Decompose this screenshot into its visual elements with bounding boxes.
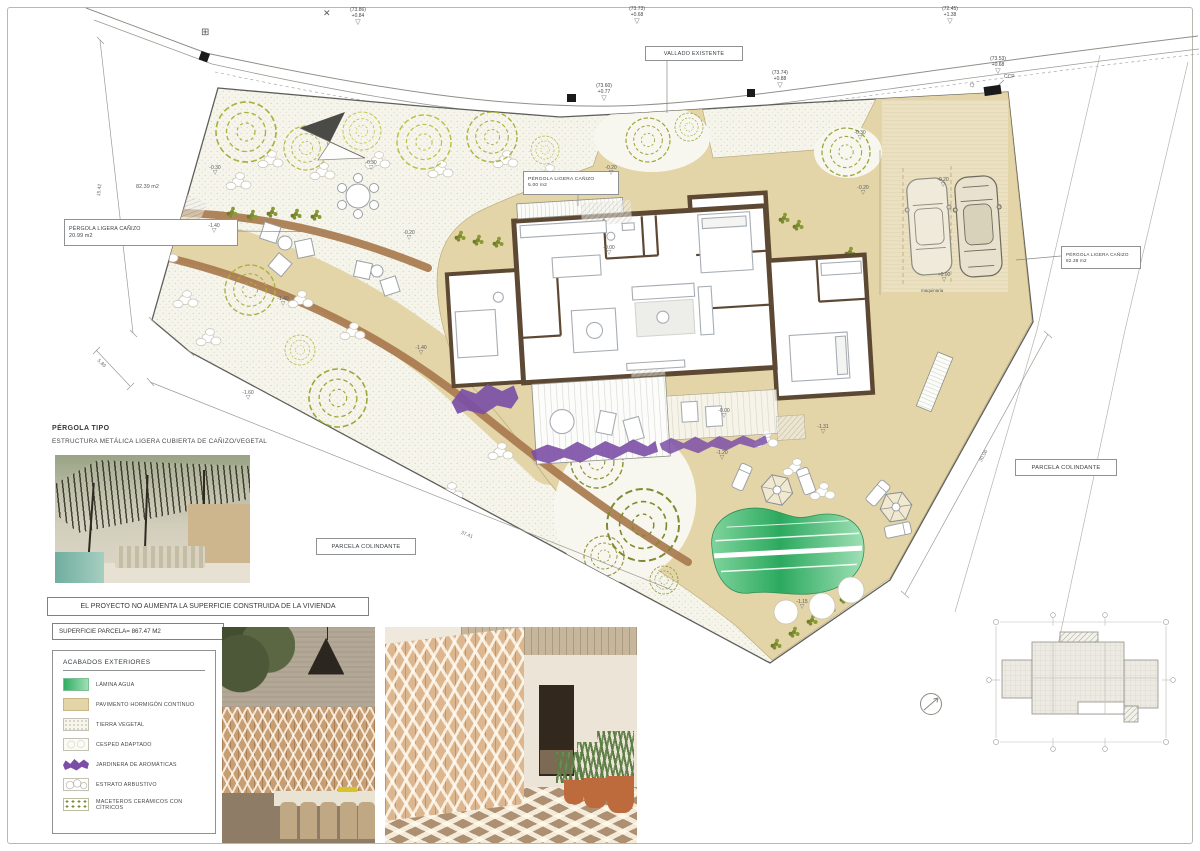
street-area-label: 82.39 m2 — [136, 184, 159, 190]
photo-lattice-wall — [222, 707, 375, 796]
interior-dining-photo — [222, 627, 375, 843]
pergola-tipo-subtitle: ESTRUCTURA METÁLICA LIGERA CUBIERTA DE C… — [52, 438, 267, 445]
level-marker: -0.00▽ — [707, 409, 741, 419]
legend-item: ESTRATO ARBUSTIVO — [63, 778, 205, 791]
photo-lattice-wall — [385, 627, 524, 821]
street-level-marker: (73.60)+0.77 ▽ — [584, 84, 624, 101]
street-level-marker: (73.86)+0.84 ▽ — [338, 8, 378, 25]
project-note: EL PROYECTO NO AUMENTA LA SUPERFICIE CON… — [47, 597, 369, 616]
photo-pool — [55, 552, 104, 583]
legend-item: MACETEROS CERÁMICOS CON CÍTRICOS — [63, 798, 205, 811]
level-triangle-icon: ▽ — [338, 20, 378, 26]
photo-pot — [584, 778, 607, 808]
level-marker: -1.40▽ — [404, 346, 438, 356]
level-triangle-icon: ▽ — [760, 83, 800, 89]
paving-swatch — [63, 698, 89, 711]
level-marker: -0.20▽ — [926, 178, 960, 188]
level-triangle-icon: ▽ — [617, 19, 657, 25]
benchmark-icon: ✕ — [323, 8, 331, 19]
water-swatch — [63, 678, 89, 691]
north-compass — [921, 694, 942, 715]
streetlight-icon: ☼ — [968, 79, 976, 89]
soil-swatch — [63, 718, 89, 731]
corridor-lattice-photo — [385, 627, 637, 843]
level-marker: -0.00▽ — [592, 246, 626, 256]
legend-item: TIERRA VEGETAL — [63, 718, 205, 731]
roof-plan — [987, 613, 1176, 752]
photo-olive-tree — [222, 627, 295, 709]
legend-item: LÁMINA AGUA — [63, 678, 205, 691]
grass-swatch — [63, 738, 89, 751]
level-marker: -0.30▽ — [354, 161, 388, 171]
level-marker: -1.20▽ — [705, 451, 739, 461]
ccp-label: CCP — [1004, 74, 1015, 80]
maquinaria-label: maquinaria — [921, 288, 943, 293]
level-triangle-icon: ▽ — [584, 96, 624, 102]
pergola-right-label: PÉRGOLA LIGERA CAÑIZO82.38 m2 — [1061, 246, 1141, 269]
legend-item: CESPED ADAPTADO — [63, 738, 205, 751]
parcela-colindante-label: PARCELA COLINDANTE — [1015, 459, 1117, 476]
level-marker: -1.40▽ — [266, 297, 300, 307]
level-marker: -1.40▽ — [197, 224, 231, 234]
level-marker: +0.00▽ — [927, 273, 961, 283]
dimension-label: 15.42 — [96, 184, 103, 197]
level-marker: -1.15▽ — [785, 600, 819, 610]
level-marker: -0.20▽ — [846, 186, 880, 196]
level-triangle-icon: ▽ — [930, 19, 970, 25]
street-level-marker: (73.73)+0.68 ▽ — [617, 7, 657, 24]
level-marker: -0.20▽ — [392, 231, 426, 241]
photo-plant — [556, 752, 581, 782]
vallado-existente-label: VALLADO EXISTENTE — [645, 46, 743, 61]
shrub-swatch — [63, 778, 89, 791]
level-marker: -0.30▽ — [843, 131, 877, 141]
aromatics-swatch — [63, 758, 89, 771]
utility-icon: ⊞ — [201, 27, 209, 38]
finishes-legend: ACABADOS EXTERIORES LÁMINA AGUA PAVIMENT… — [52, 650, 216, 834]
street-level-marker: (73.53)+0.68 ▽ — [978, 57, 1018, 74]
parcela-colindante-label: PARCELA COLINDANTE — [316, 538, 416, 555]
level-marker: -0.30▽ — [198, 166, 232, 176]
citrus-swatch — [63, 798, 89, 811]
level-marker: -1.31▽ — [806, 425, 840, 435]
street-level-marker: (73.74)+0.88 ▽ — [760, 71, 800, 88]
legend-title: ACABADOS EXTERIORES — [63, 659, 205, 671]
pergola-photo — [55, 455, 250, 583]
level-marker: -0.20▽ — [594, 166, 628, 176]
street-level-marker: (72.45)+1.38 ▽ — [930, 7, 970, 24]
legend-item: PAVIMENTO HORMIGÓN CONTÍNUO — [63, 698, 205, 711]
photo-pot — [564, 780, 584, 804]
photo-sofa — [115, 546, 205, 568]
surface-note: SUPERFICIE PARCELA= 867.47 M2 — [52, 623, 224, 640]
legend-item: JARDINERA DE AROMÁTICAS — [63, 758, 205, 771]
level-marker: -1.60▽ — [231, 391, 265, 401]
photo-pot — [607, 776, 635, 813]
pergola-tipo-title: PÉRGOLA TIPO — [52, 425, 109, 432]
